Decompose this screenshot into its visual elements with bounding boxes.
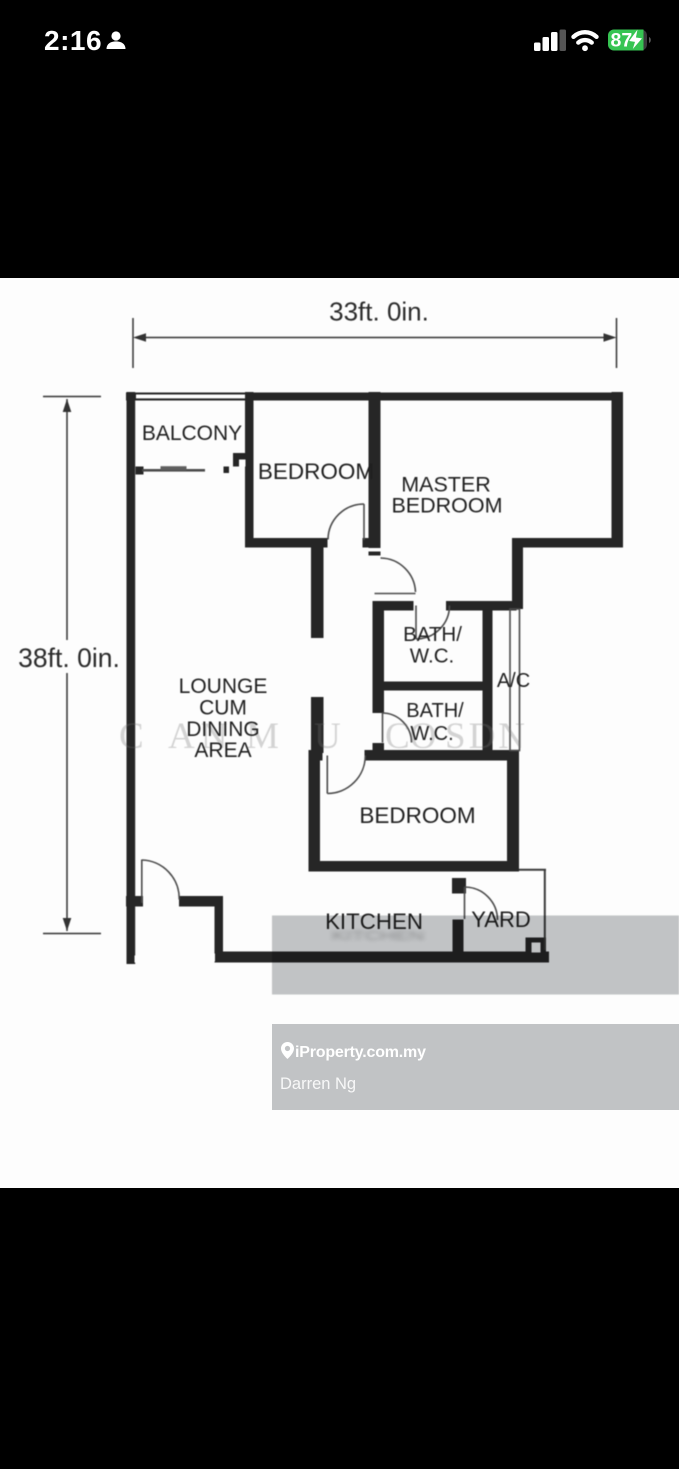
svg-text:BEDROOM: BEDROOM (359, 803, 475, 828)
svg-text:AREA: AREA (194, 739, 251, 762)
svg-text:W.C.: W.C. (410, 645, 454, 668)
svg-text:A/C: A/C (497, 670, 530, 692)
svg-text:U: U (314, 716, 341, 757)
svg-text:33ft. 0in.: 33ft. 0in. (329, 297, 429, 327)
svg-text:BEDROOM: BEDROOM (391, 494, 502, 518)
svg-text:W.C.: W.C. (410, 723, 453, 745)
svg-text:BATH/: BATH/ (403, 623, 462, 646)
svg-text:DINING: DINING (186, 718, 260, 741)
svg-text:BALCONY: BALCONY (142, 422, 242, 445)
svg-text:SDN: SDN (445, 716, 528, 757)
svg-text:87: 87 (611, 30, 633, 52)
svg-text:CUM: CUM (199, 697, 247, 720)
svg-text:BATH/: BATH/ (406, 700, 464, 722)
svg-text:C: C (119, 716, 144, 757)
svg-text:LOUNGE: LOUNGE (179, 675, 268, 698)
svg-text:38ft. 0in.: 38ft. 0in. (18, 643, 120, 673)
svg-text:BEDROOM: BEDROOM (258, 459, 374, 484)
